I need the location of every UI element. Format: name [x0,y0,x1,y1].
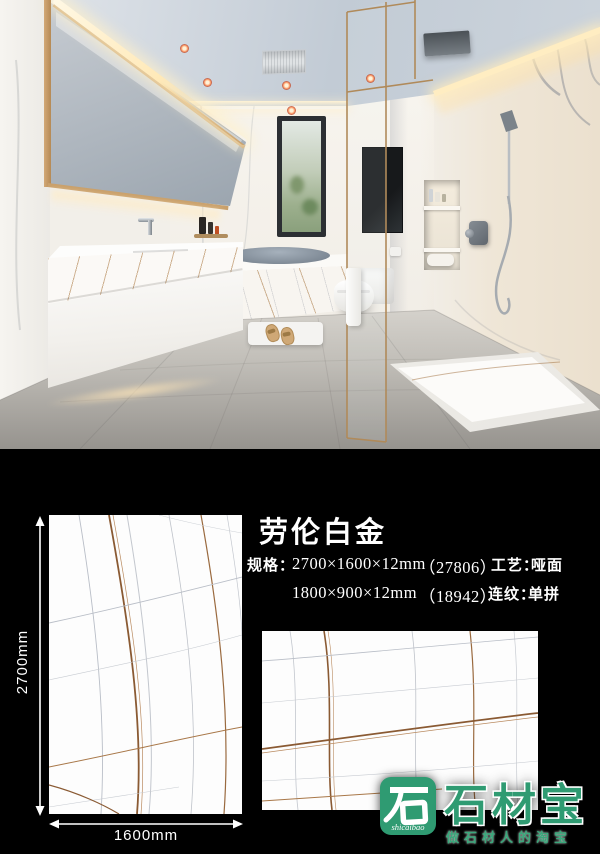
downlight [203,78,212,87]
glass-panel [347,2,386,442]
pattern-value: 单拼 [528,583,560,604]
finish-value: 哑面 [531,554,563,575]
product-info-panel: 2700mm 1600mm 劳伦白金 规格： 2700×1600×12mm （2… [0,449,600,854]
spec-code-1: （27806） [419,554,497,578]
shower-hose [496,196,511,313]
downlight [180,44,189,53]
hand-shower-head [500,110,518,132]
dim-height-label: 2700mm [14,622,32,702]
product-title: 劳伦白金 [259,509,387,551]
brand-logo: shicaibao 石材宝 做石材人的淘宝 [376,771,594,853]
fixtures-overlay [0,0,600,449]
logo-latin: shicaibao [380,822,436,832]
downlight [282,81,291,90]
tray-vein [412,362,560,380]
spec-size-1: 2700×1600×12mm [292,554,426,574]
hanging-towel [346,268,361,326]
bathroom-photo [0,0,600,449]
tile-veins [49,515,242,814]
dim-width-label: 1600mm [96,827,196,844]
logo-icon: shicaibao [380,777,436,835]
spec-code-2: （18942） [419,583,497,607]
tile-sample-large [49,515,242,814]
spec-label: 规格： [247,554,295,575]
downlight [366,74,375,83]
dim-arrow-vertical [33,515,47,817]
downlight [287,106,296,115]
spec-size-2: 1800×900×12mm [292,583,417,603]
brand-name: 石材宝 [444,769,588,833]
product-poster: 2700mm 1600mm 劳伦白金 规格： 2700×1600×12mm （2… [0,0,600,854]
brand-tagline: 做石材人的淘宝 [446,827,572,846]
